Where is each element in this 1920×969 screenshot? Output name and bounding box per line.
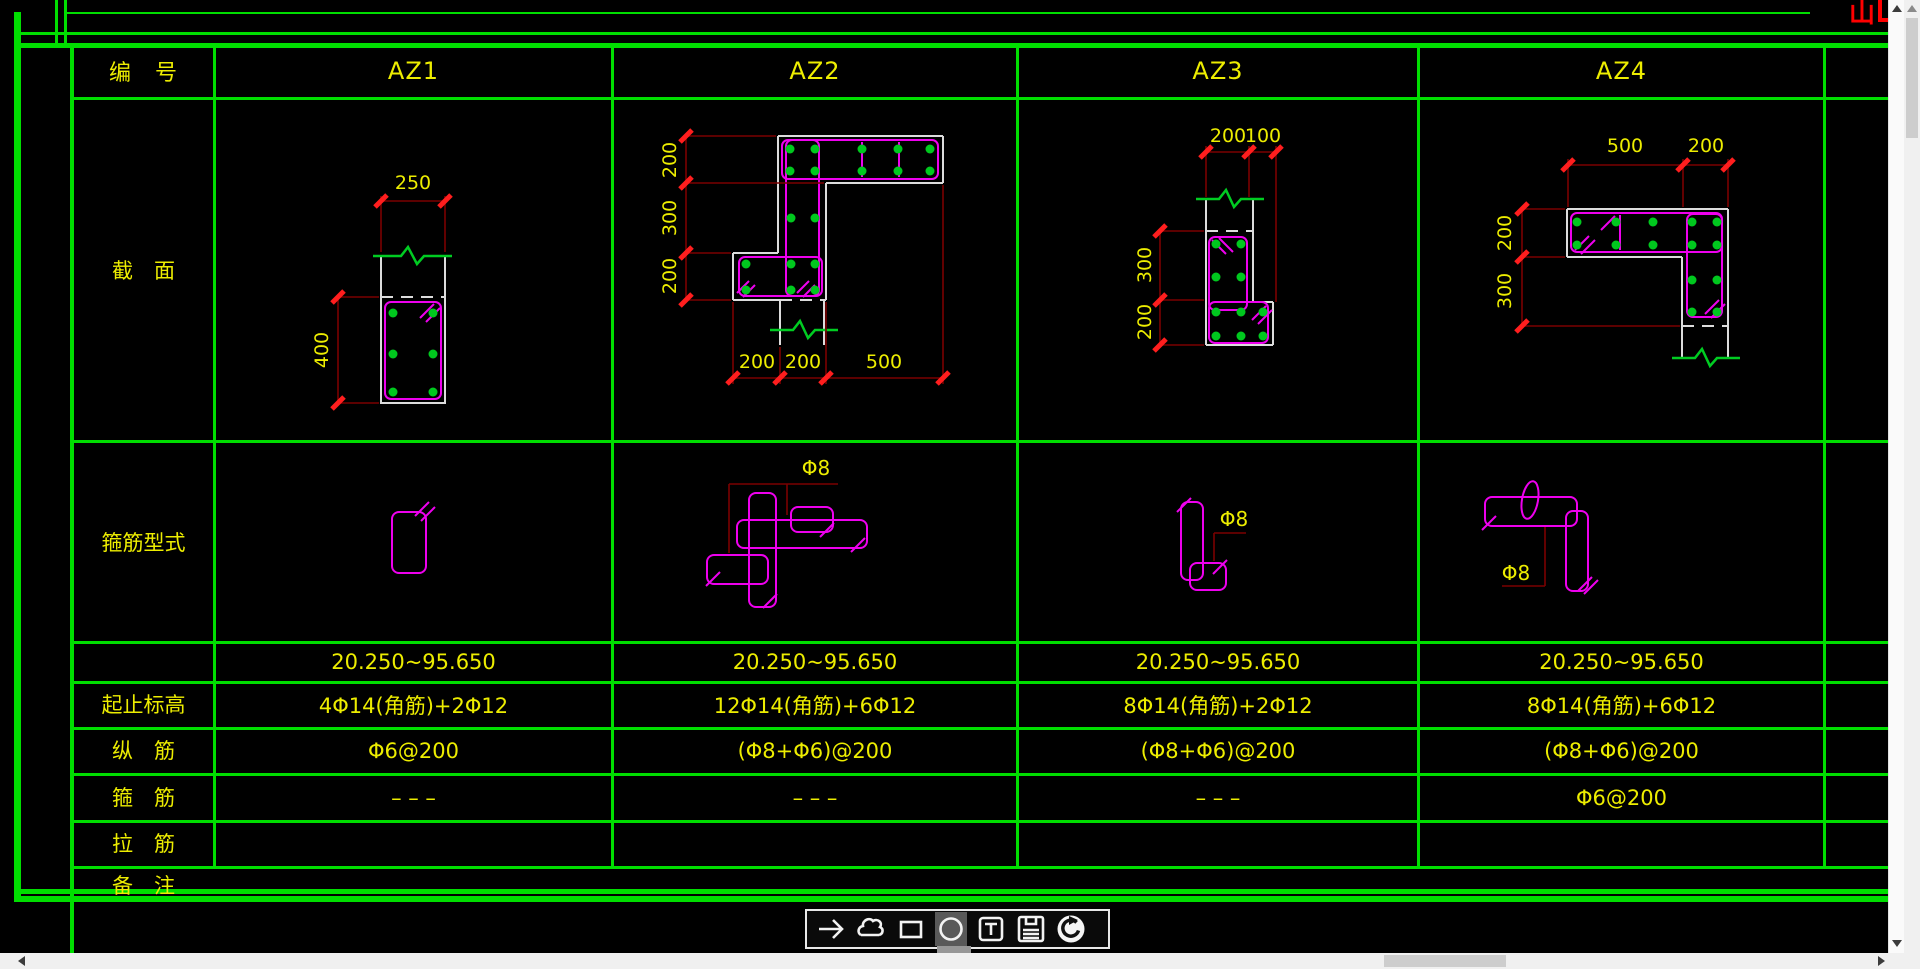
az2-dim-bottom-2: 500 <box>866 351 902 373</box>
stirrup-az1: Φ6@200 <box>216 729 611 773</box>
tie-az2: – – – <box>614 775 1016 820</box>
header-label: 编 号 <box>74 45 213 97</box>
text-icon <box>976 914 1006 944</box>
az3-dim-top-1: 100 <box>1245 125 1281 147</box>
elevation-az3: 20.250~95.650 <box>1019 643 1417 681</box>
rectangle-icon <box>896 914 926 944</box>
arrow-tool-button[interactable] <box>815 912 847 946</box>
save-icon <box>1016 914 1046 944</box>
inner-scroll-up-arrow-icon[interactable] <box>1892 5 1902 12</box>
cloud-icon <box>856 914 886 944</box>
tie-az3: – – – <box>1019 775 1417 820</box>
az2-dim-bottom-0: 200 <box>739 351 775 373</box>
elevation-az4: 20.250~95.650 <box>1420 643 1823 681</box>
az3-section-drawing <box>1154 146 1282 351</box>
az2-dim-bottom-1: 200 <box>785 351 821 373</box>
text-tool-button[interactable] <box>975 912 1007 946</box>
az3-dim-left-1: 200 <box>1134 304 1156 340</box>
horizontal-scroll-thumb[interactable] <box>1384 955 1506 967</box>
outer-vertical-scrollbar[interactable] <box>1904 0 1920 969</box>
horizontal-scrollbar[interactable] <box>0 953 1904 969</box>
longitudinal-az3: 8Φ14(角筋)+2Φ12 <box>1019 683 1417 727</box>
arrow-right-icon <box>816 914 846 944</box>
stirrup-az4: (Φ8+Φ6)@200 <box>1420 729 1823 773</box>
remark-az4 <box>1420 822 1823 866</box>
elevation-az2: 20.250~95.650 <box>614 643 1016 681</box>
outer-scroll-up-arrow-icon[interactable] <box>1907 5 1917 12</box>
az4-stirrup-label: Φ8 <box>1502 561 1530 585</box>
az4-stirrup-shape <box>1482 480 1598 594</box>
undo-tool-button[interactable] <box>1055 912 1087 946</box>
stirrup-az3: (Φ8+Φ6)@200 <box>1019 729 1417 773</box>
header-az3: AZ3 <box>1019 45 1417 97</box>
az2-stirrup-label: Φ8 <box>802 456 830 480</box>
longitudinal-az2: 12Φ14(角筋)+6Φ12 <box>614 683 1016 727</box>
tie-az1: – – – <box>216 775 611 820</box>
az4-dim-left-0: 200 <box>1494 215 1516 251</box>
inner-scroll-down-arrow-icon[interactable] <box>1892 940 1902 947</box>
remark-az1 <box>216 822 611 866</box>
rowlabel-stirrup: 箍 筋 <box>74 773 213 820</box>
scroll-right-arrow-icon[interactable] <box>1878 956 1885 966</box>
az2-stirrup-shape <box>706 484 867 608</box>
header-az1: AZ1 <box>216 45 611 97</box>
header-az2: AZ2 <box>614 45 1016 97</box>
rectangle-tool-button[interactable] <box>895 912 927 946</box>
cad-viewport[interactable]: 山 <box>0 0 1920 969</box>
rowlabel-remark: 备 注 <box>74 866 213 904</box>
az4-dim-top-1: 200 <box>1688 135 1724 157</box>
az3-dim-top-0: 200 <box>1210 125 1246 147</box>
longitudinal-az1: 4Φ14(角筋)+2Φ12 <box>216 683 611 727</box>
az1-dim-left: 400 <box>311 332 333 368</box>
az2-section-drawing <box>680 130 949 384</box>
az1-stirrup-shape <box>392 502 435 573</box>
az3-stirrup-label: Φ8 <box>1220 507 1248 531</box>
header-az4: AZ4 <box>1420 45 1823 97</box>
az2-dim-left-1: 300 <box>659 200 681 236</box>
az3-dim-left-0: 300 <box>1134 247 1156 283</box>
drawing-toolbar <box>805 909 1110 949</box>
az1-section-drawing <box>332 195 452 409</box>
rowlabel-elevation: 起止标高 <box>74 681 213 727</box>
az2-dim-left-2: 200 <box>659 258 681 294</box>
stirrup-az2: (Φ8+Φ6)@200 <box>614 729 1016 773</box>
outer-vertical-scroll-thumb[interactable] <box>1906 18 1918 138</box>
az1-dim-top: 250 <box>395 172 431 194</box>
rowlabel-stirrup-type: 箍筋型式 <box>74 443 213 641</box>
remark-az3 <box>1019 822 1417 866</box>
scroll-left-arrow-icon[interactable] <box>18 956 25 966</box>
circle-tool-button[interactable] <box>935 912 967 946</box>
save-tool-button[interactable] <box>1015 912 1047 946</box>
circle-icon <box>936 914 966 944</box>
tie-az4: Φ6@200 <box>1420 775 1823 820</box>
az4-section-drawing <box>1516 159 1740 366</box>
remark-az2 <box>614 822 1016 866</box>
elevation-az1: 20.250~95.650 <box>216 643 611 681</box>
rowlabel-longitudinal: 纵 筋 <box>74 727 213 773</box>
inner-vertical-scrollbar[interactable] <box>1888 0 1905 953</box>
rowlabel-tie: 拉 筋 <box>74 820 213 866</box>
longitudinal-az4: 8Φ14(角筋)+6Φ12 <box>1420 683 1823 727</box>
rowlabel-section: 截 面 <box>74 100 213 440</box>
cloud-tool-button[interactable] <box>855 912 887 946</box>
undo-icon <box>1056 914 1086 944</box>
az2-dim-left-0: 200 <box>659 142 681 178</box>
az4-dim-top-0: 500 <box>1607 135 1643 157</box>
scrollbar-corner <box>1888 953 1920 969</box>
az4-dim-left-1: 300 <box>1494 273 1516 309</box>
